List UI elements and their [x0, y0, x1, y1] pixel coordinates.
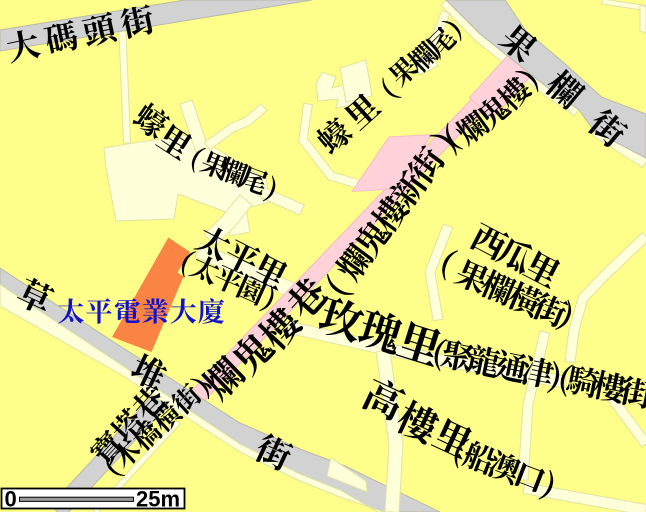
svg-text:25m: 25m [136, 487, 180, 512]
svg-text:0: 0 [5, 487, 17, 512]
